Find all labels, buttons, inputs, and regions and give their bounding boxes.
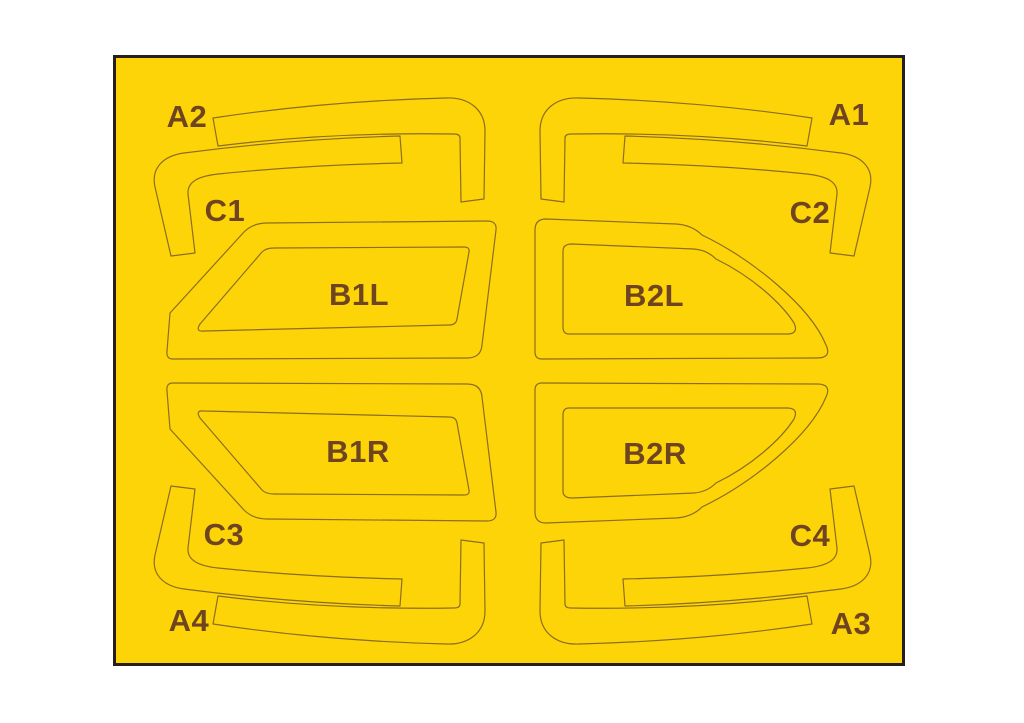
- piece-a2: [213, 98, 485, 202]
- piece-label-a2: A2: [167, 99, 208, 134]
- piece-label-c3: C3: [204, 517, 245, 552]
- piece-a3: [540, 540, 812, 644]
- piece-label-b2l: B2L: [624, 278, 684, 313]
- piece-label-b2r: B2R: [623, 436, 687, 471]
- piece-label-c4: C4: [790, 518, 831, 553]
- piece-label-b1r: B1R: [326, 434, 390, 469]
- piece-label-a4: A4: [169, 603, 210, 638]
- masking-sheet: A2 A1 C1 C2 B1L B2L B1R B2R C3 C4 A4 A3: [113, 55, 905, 666]
- piece-label-b1l: B1L: [329, 277, 389, 312]
- piece-c1: [154, 136, 402, 256]
- piece-label-c2: C2: [790, 195, 831, 230]
- page-background: A2 A1 C1 C2 B1L B2L B1R B2R C3 C4 A4 A3: [0, 0, 1024, 723]
- piece-label-a1: A1: [829, 97, 870, 132]
- piece-c2: [623, 136, 871, 256]
- piece-a4: [213, 540, 485, 644]
- piece-label-c1: C1: [205, 193, 246, 228]
- die-cut-layout: A2 A1 C1 C2 B1L B2L B1R B2R C3 C4 A4 A3: [116, 58, 908, 669]
- piece-label-a3: A3: [831, 606, 872, 641]
- piece-a1: [540, 98, 812, 202]
- piece-c3: [154, 486, 402, 606]
- piece-c4: [623, 486, 871, 606]
